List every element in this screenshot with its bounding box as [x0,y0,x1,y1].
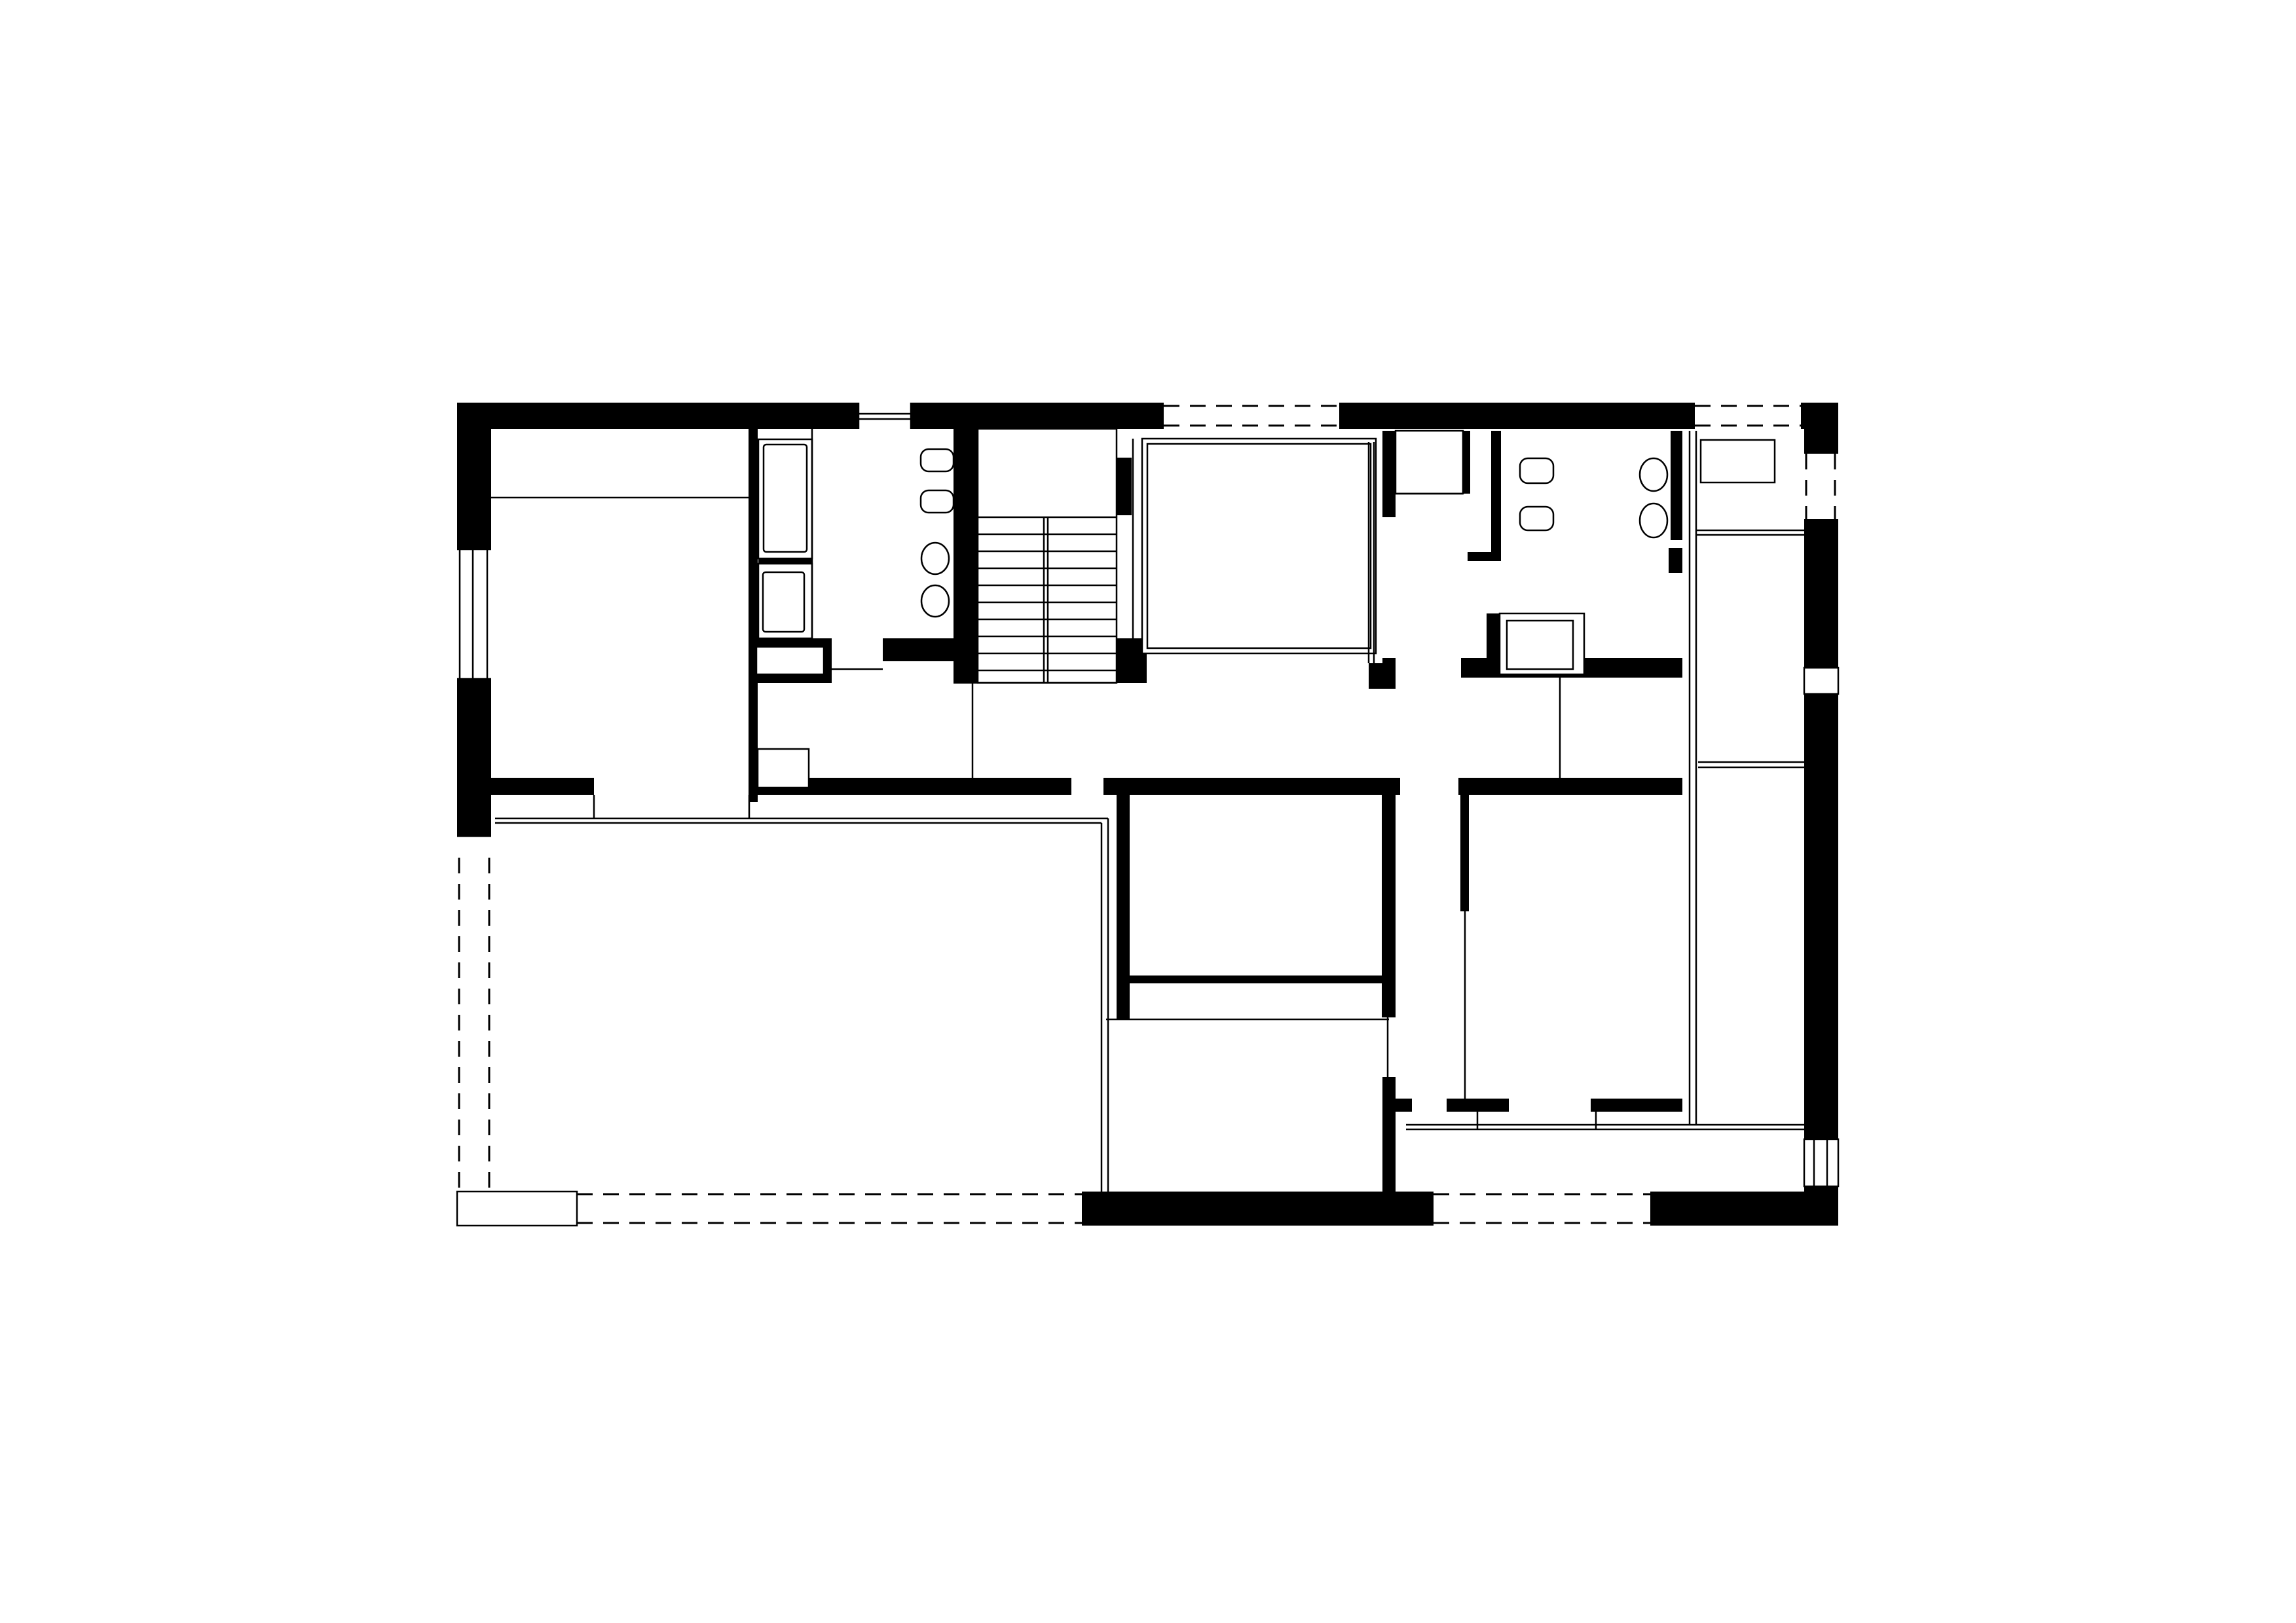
exterior-wall-top-2 [911,403,1164,429]
toilet-2 [921,585,949,617]
closet-band-top [749,638,832,647]
kitchen-wall-c [1103,778,1400,795]
paper-background [0,0,2296,1623]
exterior-wall-top-1 [457,403,859,429]
wc-wall-right [1463,431,1470,494]
washbasin-1 [921,449,954,471]
exterior-wall-left-lower [457,679,491,836]
wc-wall-left [1382,431,1396,517]
exterior-wall-left-upper [457,403,491,549]
terrace-door-jamb-2 [1591,1099,1682,1112]
page [0,0,2296,1623]
kitchen-niche [758,749,809,788]
kitchen-wall-a [491,778,594,795]
exterior-wall-top-3 [1339,403,1695,429]
exterior-wall-bottom-1 [1082,1192,1434,1226]
wc-wall-left-stub [1382,658,1396,689]
midroom-wall-stub [1396,1099,1412,1112]
washbasin-3 [1520,458,1553,483]
bath-wall-bottom-right [883,638,965,661]
bathtub-inner [764,445,807,552]
exterior-wall-right-2 [1804,519,1838,668]
closet-band-bottom [749,674,832,683]
bath2-wall-stub [1468,552,1501,561]
terrace-door-jamb-1 [1447,1099,1509,1112]
planter-outer [457,1192,577,1226]
toilet-3 [1640,458,1667,491]
midroom-wall-right-upper [1382,795,1396,1017]
toilet-1 [921,543,949,574]
partition-bedroom-bath [749,429,758,802]
void-outline-inner [1147,444,1371,648]
washing-machine-inner [1507,621,1573,669]
stair-wall-left [954,429,978,683]
toilet-4 [1640,503,1667,538]
floor-plan-container [0,0,2296,1623]
closet-door-leaf [756,647,824,674]
loggia-box [1701,440,1775,483]
closet-cap [824,638,832,683]
right-wall-opening-box [1804,668,1838,694]
bath2-wall-right-block [1669,548,1682,573]
right-wall-window-low [1804,1139,1838,1186]
shower-inner [763,572,804,632]
wardrobe-band [1130,976,1386,983]
bedroom2-wall-top [1458,778,1682,795]
washbasin-4 [1520,507,1553,530]
bath2-wall-right [1671,431,1682,540]
exterior-wall-right-3 [1804,694,1838,1139]
exterior-wall-right-1 [1804,403,1838,454]
wardrobe-wall-left [1117,795,1130,1019]
bedroom2-wall-left [1460,795,1469,911]
midroom-wall-right-lower [1382,1077,1396,1200]
exterior-wall-bottom-2 [1650,1192,1838,1226]
stair-wall-right-stub [1117,458,1132,515]
floor-plan-drawing [0,0,2296,1623]
bath2-wall-left [1491,431,1501,552]
wc-room [1396,431,1463,494]
washbasin-2 [921,490,954,513]
